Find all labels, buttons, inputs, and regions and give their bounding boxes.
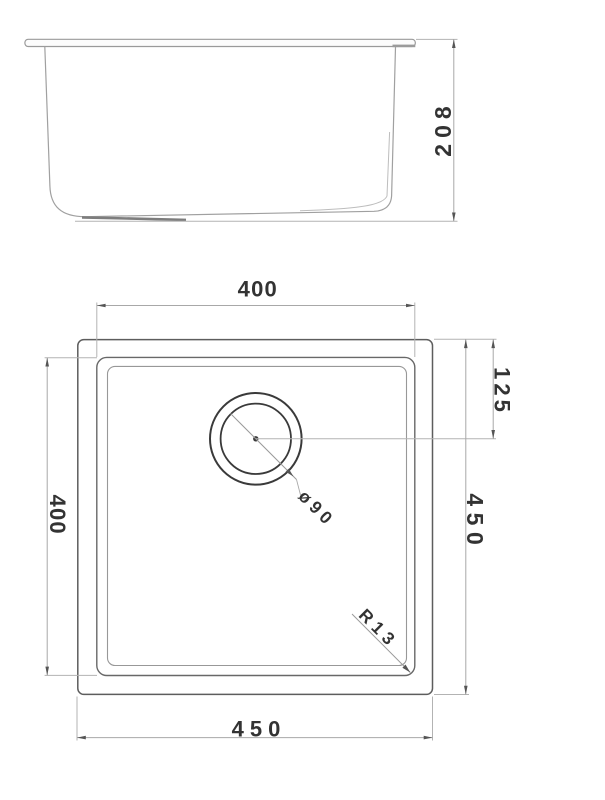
svg-text:400: 400	[238, 276, 278, 301]
svg-text:450: 450	[462, 493, 488, 551]
svg-text:400: 400	[45, 495, 70, 535]
svg-text:450: 450	[232, 717, 287, 742]
svg-text:125: 125	[490, 367, 515, 416]
svg-text:208: 208	[430, 100, 456, 156]
